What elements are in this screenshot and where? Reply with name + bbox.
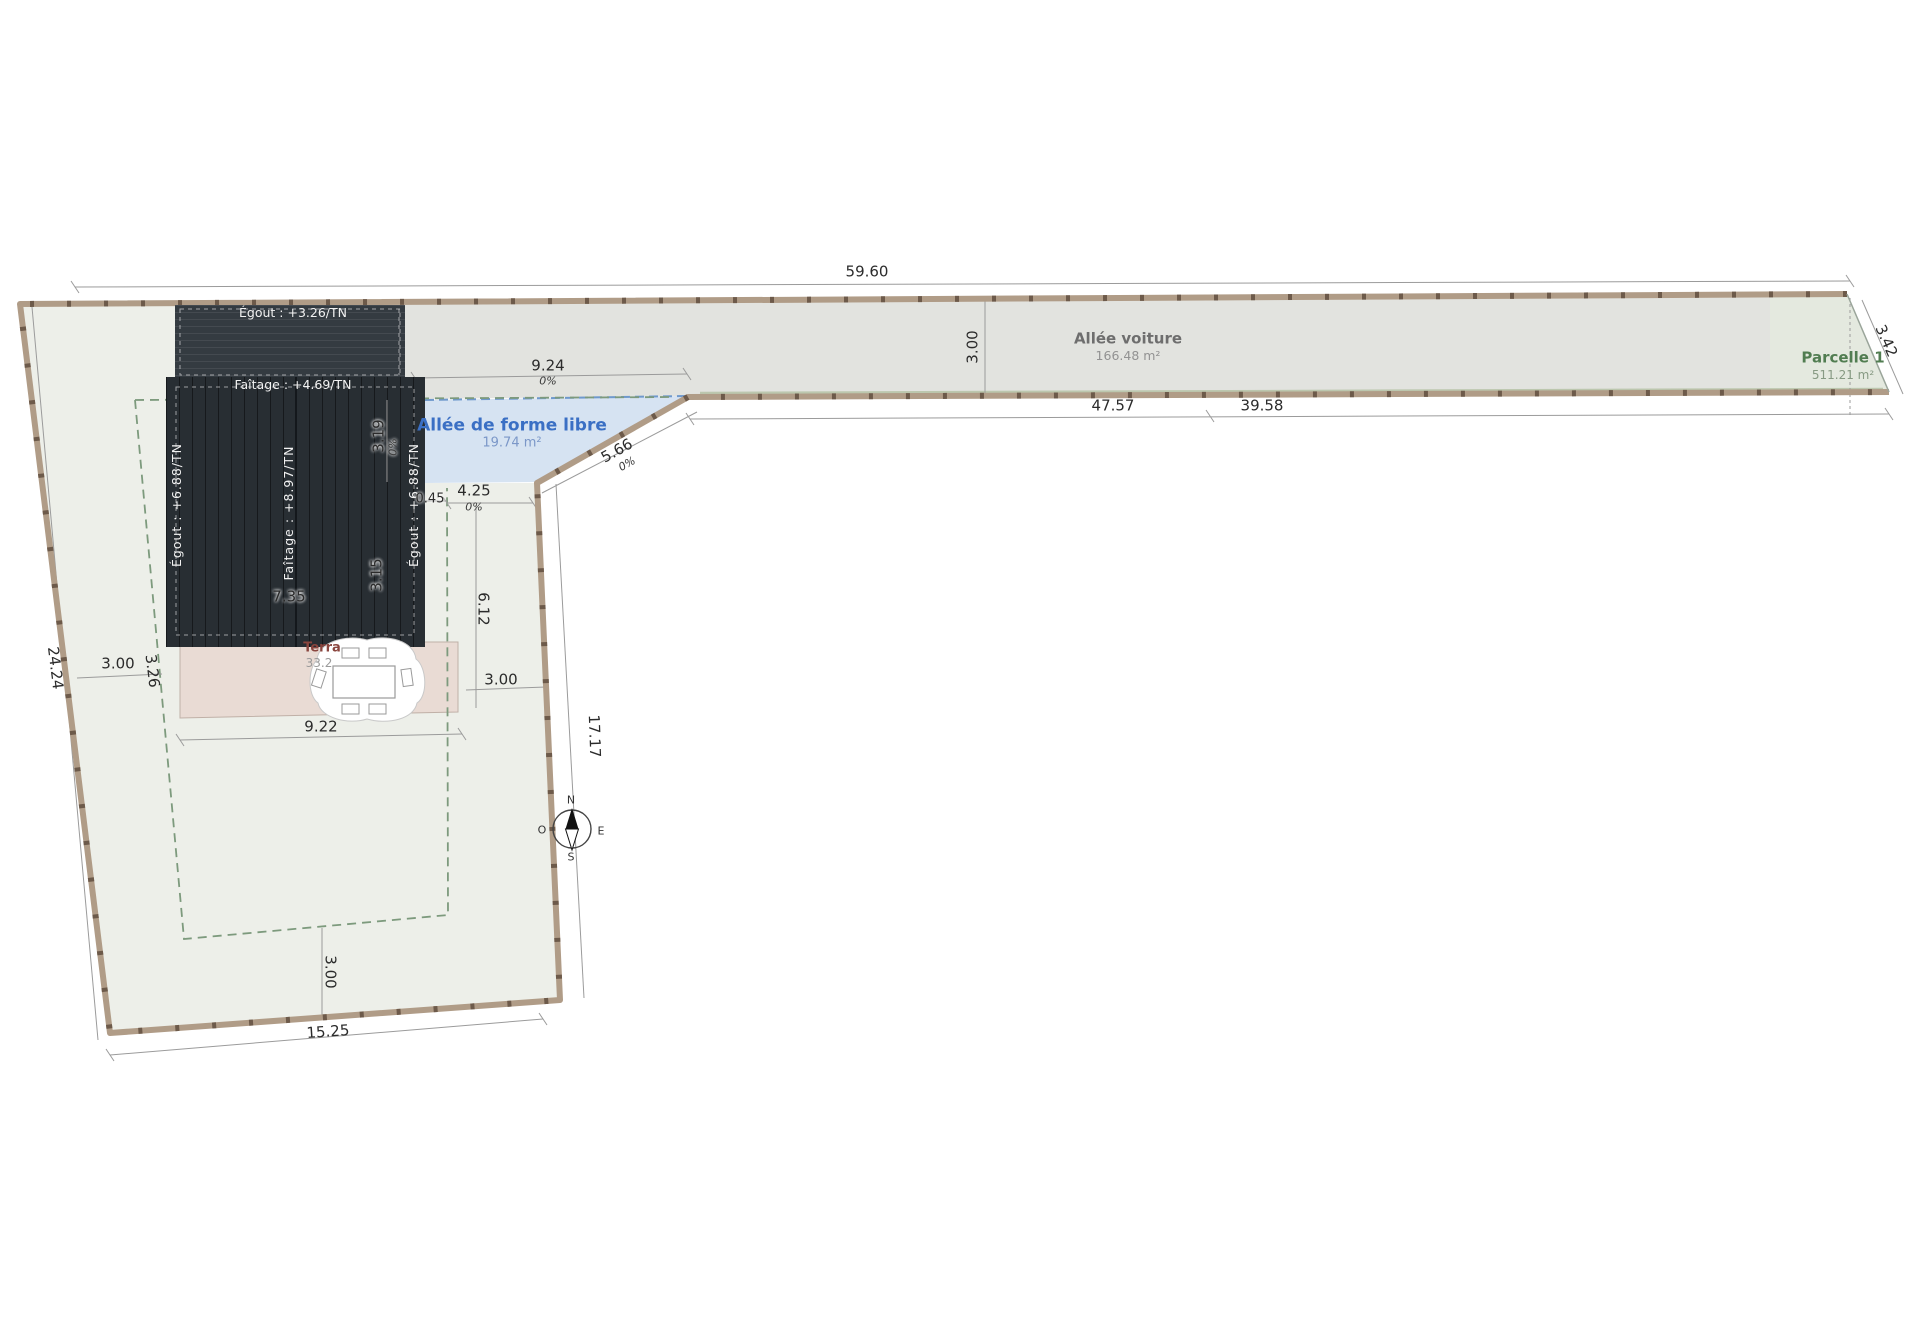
dim-0-45: 0.45 xyxy=(416,493,445,506)
compass-west-label: O xyxy=(538,825,547,836)
dim-3-19-slope: 0% xyxy=(388,438,399,455)
terrace-area-label: 33.2 xyxy=(306,657,333,669)
dim-6-12: 6.12 xyxy=(476,592,491,625)
dim-17-17: 17.17 xyxy=(586,714,602,757)
dim-47-57: 47.57 xyxy=(1092,399,1135,414)
parcelle1-label: Parcelle 1 xyxy=(1801,351,1884,366)
roof-faitage-low-label: Faîtage : +4.69/TN xyxy=(234,379,351,392)
roof-egout-low-label: Égout : +3.26/TN xyxy=(239,307,347,320)
allee-libre-label: Allée de forme libre xyxy=(417,418,607,435)
roof-egout-left-label: Égout : +6.88/TN xyxy=(171,443,184,567)
allee-libre-area: 19.74 m² xyxy=(482,437,541,450)
dim-39-58: 39.58 xyxy=(1241,399,1284,414)
dim-9-22: 9.22 xyxy=(304,720,337,735)
dim-3-00-bottom: 3.00 xyxy=(323,955,338,988)
dim-4-25-slope: 0% xyxy=(465,502,482,513)
dim-15-25: 15.25 xyxy=(306,1023,350,1041)
dim-7-35: 7.35 xyxy=(272,590,305,605)
dim-3-15: 3.15 xyxy=(370,558,385,591)
dim-3-26: 3.26 xyxy=(143,654,162,689)
dim-9-24: 9.24 xyxy=(531,359,564,374)
compass xyxy=(553,808,591,850)
site-plan-page: 59.60 3.00 Allée voiture 166.48 m² Parce… xyxy=(0,0,1920,1329)
dim-3-00-left: 3.00 xyxy=(101,657,134,672)
compass-south-label: S xyxy=(568,852,575,863)
site-plan-overlay-svg xyxy=(0,0,1920,1329)
allee-voiture-area: 166.48 m² xyxy=(1096,350,1161,363)
dim-9-24-slope: 0% xyxy=(539,376,556,387)
terrace-label: Terra xyxy=(303,642,341,655)
allee-voiture-label: Allée voiture xyxy=(1074,332,1182,347)
compass-north-label: N xyxy=(567,795,575,806)
parcelle1-area: 511.21 m² xyxy=(1812,369,1874,381)
dim-59-60: 59.60 xyxy=(846,265,889,280)
roof-faitage-high-label: Faîtage : +8.97/TN xyxy=(283,445,296,580)
dim-3-00-strip: 3.00 xyxy=(966,330,981,363)
compass-east-label: E xyxy=(598,826,605,837)
dim-3-19: 3.19 xyxy=(372,419,387,452)
dim-4-25: 4.25 xyxy=(457,484,490,499)
dim-3-00-terrace: 3.00 xyxy=(484,673,517,688)
dim-24-24: 24.24 xyxy=(45,646,65,690)
